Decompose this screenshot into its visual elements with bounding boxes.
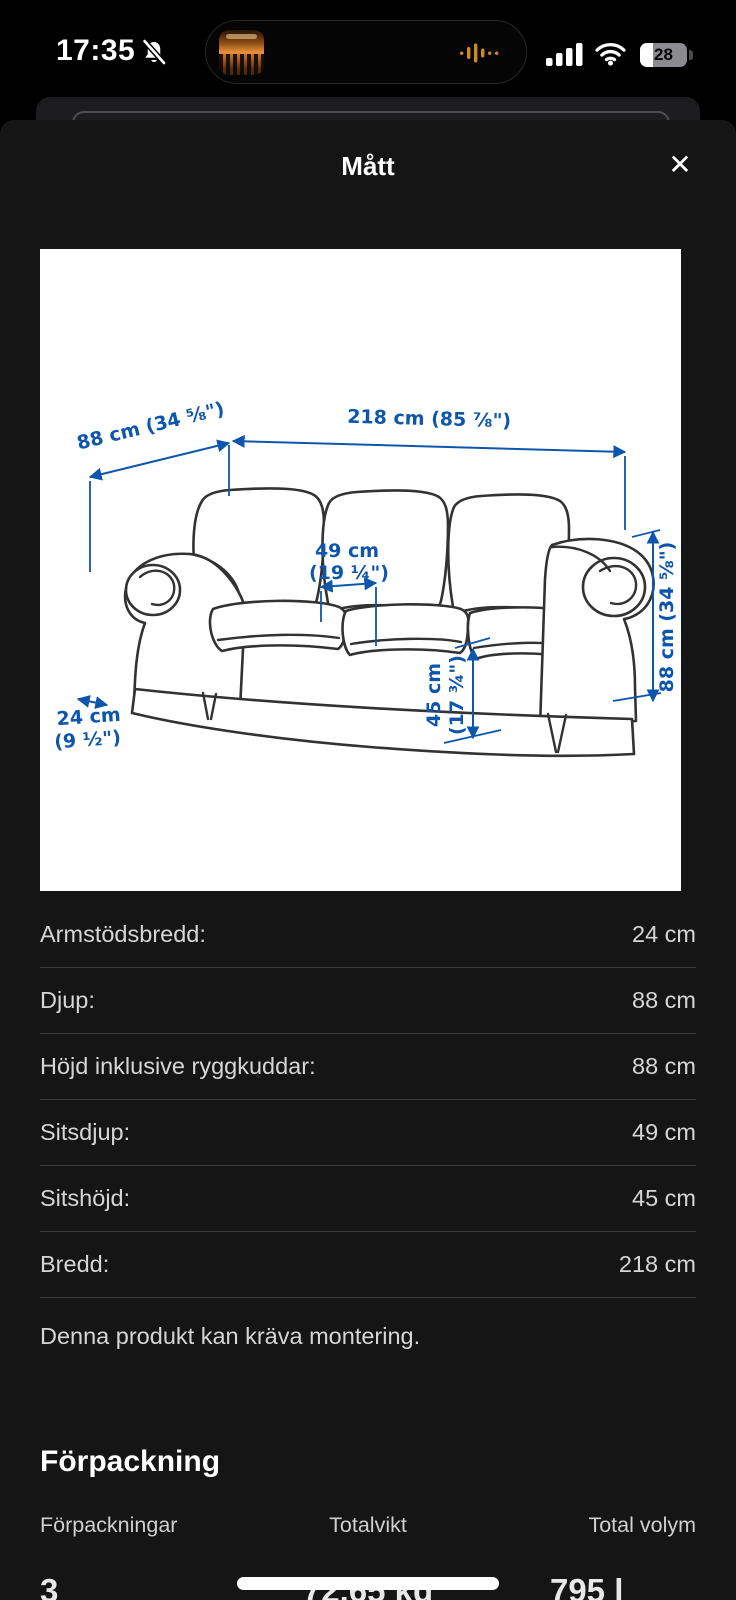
measurement-label: Bredd: [40, 1251, 109, 1278]
height-dimension-label: 88 cm (34 ⅝") [656, 542, 678, 693]
assembly-note: Denna produkt kan kräva montering. [40, 1323, 696, 1350]
total-volume-label: Total volym [588, 1513, 696, 1538]
measurement-label: Sitshöjd: [40, 1185, 130, 1212]
measurement-value: 24 cm [632, 921, 696, 948]
total-volume-value: 795 l [550, 1572, 623, 1600]
measurement-row: Djup: 88 cm [40, 968, 696, 1034]
arm-width-in-label: (9 ½") [54, 727, 122, 754]
arm-width-cm-label: 24 cm [56, 704, 122, 730]
album-art [219, 30, 264, 75]
measurement-label: Armstödsbredd: [40, 921, 206, 948]
measurement-row: Sitsdjup: 49 cm [40, 1100, 696, 1166]
packaging-count-column: Förpackningar 3 [40, 1513, 259, 1600]
seat-depth-in-label: (19 ¼") [309, 562, 389, 584]
measurement-value: 218 cm [619, 1251, 696, 1278]
battery-percent: 28 [640, 43, 687, 67]
total-volume-column: Total volym 795 l [477, 1513, 696, 1600]
packaging-heading: Förpackning [40, 1445, 220, 1479]
dimension-diagram: 88 cm (34 ⅝") 218 cm (85 ⅞") 88 cm (34 ⅝… [40, 249, 681, 891]
sofa-line-drawing: 88 cm (34 ⅝") 218 cm (85 ⅞") 88 cm (34 ⅝… [40, 249, 681, 891]
measurement-label: Höjd inklusive ryggkuddar: [40, 1053, 316, 1080]
screen: 17:35 [0, 0, 736, 1600]
battery-nub [689, 50, 693, 60]
close-icon: ✕ [668, 148, 691, 181]
clock: 17:35 [56, 34, 135, 68]
width-dimension-label: 218 cm (85 ⅞") [347, 406, 512, 433]
measurements-modal: Mått ✕ [0, 120, 736, 1600]
wifi-icon [594, 41, 627, 66]
audio-waveform-icon [458, 41, 506, 65]
total-weight-label: Totalvikt [329, 1513, 407, 1538]
measurement-label: Sitsdjup: [40, 1119, 130, 1146]
dynamic-island[interactable] [205, 20, 527, 84]
measurements-list: Armstödsbredd: 24 cm Djup: 88 cm Höjd in… [40, 902, 696, 1298]
measurement-row: Bredd: 218 cm [40, 1232, 696, 1298]
cellular-signal-icon [546, 42, 584, 67]
seat-height-cm-label: 45 cm [423, 663, 445, 727]
depth-dimension-label: 88 cm (34 ⅝") [75, 398, 227, 455]
measurement-value: 49 cm [632, 1119, 696, 1146]
battery-icon: 28 [640, 43, 687, 67]
status-bar: 17:35 [0, 0, 736, 100]
measurement-row: Höjd inklusive ryggkuddar: 88 cm [40, 1034, 696, 1100]
packaging-count-label: Förpackningar [40, 1513, 177, 1538]
measurement-row: Sitshöjd: 45 cm [40, 1166, 696, 1232]
measurement-value: 88 cm [632, 987, 696, 1014]
seat-height-in-label: (17 ¾") [446, 655, 468, 735]
home-indicator[interactable] [237, 1577, 499, 1590]
bell-slash-icon [139, 38, 169, 68]
close-button[interactable]: ✕ [658, 142, 702, 186]
measurement-value: 88 cm [632, 1053, 696, 1080]
seat-depth-cm-label: 49 cm [315, 540, 379, 562]
measurement-value: 45 cm [632, 1185, 696, 1212]
measurement-label: Djup: [40, 987, 95, 1014]
packaging-count-value: 3 [40, 1572, 58, 1600]
modal-title: Mått [0, 151, 736, 182]
measurement-row: Armstödsbredd: 24 cm [40, 902, 696, 968]
